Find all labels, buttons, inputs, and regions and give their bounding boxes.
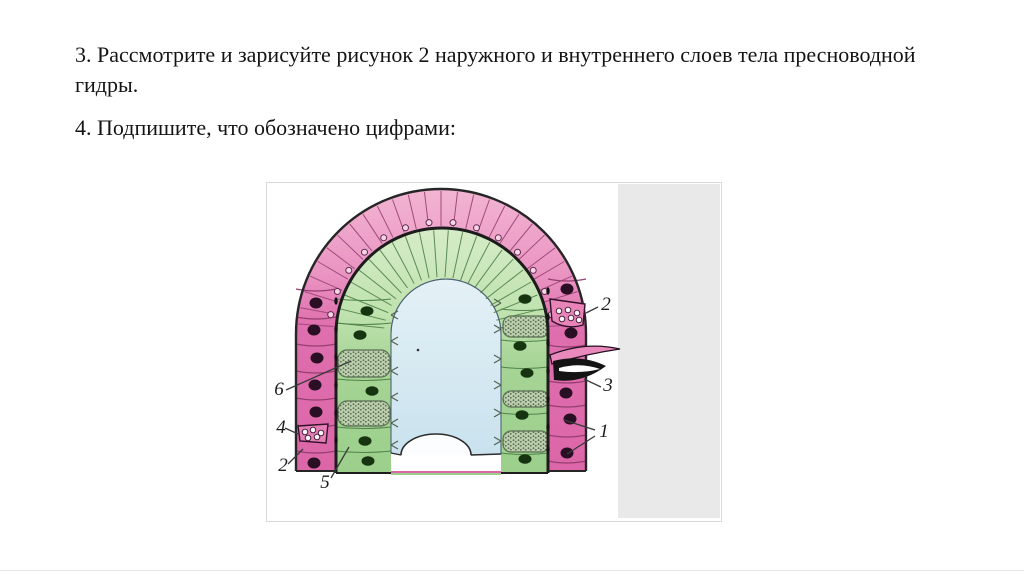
slide-bottom-edge	[0, 570, 1024, 571]
cell-nucleus	[521, 368, 534, 378]
slide: 3. Рассмотрите и зарисуйте рисунок 2 нар…	[0, 0, 1024, 574]
digestive-cell	[503, 316, 549, 337]
muscle-fibre	[546, 445, 549, 453]
task-3-text: 3. Рассмотрите и зарисуйте рисунок 2 нар…	[75, 40, 935, 100]
cell-nucleus	[309, 380, 322, 391]
muscle-fibre	[334, 409, 337, 417]
cell-nucleus	[311, 353, 324, 364]
diagram	[285, 184, 720, 518]
digestive-cell	[503, 391, 549, 407]
figure-label-5: 5	[316, 473, 334, 493]
figure-label-3: 3	[599, 376, 617, 396]
cell-nucleus	[516, 410, 529, 420]
task-4-text: 4. Подпишите, что обозначено цифрами:	[75, 113, 935, 143]
cell-nucleus	[308, 325, 321, 336]
cell-nucleus	[310, 298, 323, 309]
gray-panel	[618, 184, 720, 518]
figure-label-2-left: 2	[274, 456, 292, 476]
figure-label-2-right: 2	[597, 295, 615, 315]
hydra-figure: 2 3 1 6 4 2 5	[266, 182, 722, 522]
cell-nucleus	[519, 294, 532, 304]
muscle-fibre	[334, 353, 337, 361]
cell-nucleus	[519, 454, 532, 464]
cell-nucleus	[366, 386, 379, 396]
cell-nucleus	[514, 341, 527, 351]
figure-label-6: 6	[270, 380, 288, 400]
muscle-fibre	[334, 436, 337, 444]
cell-nucleus	[359, 436, 372, 446]
cell-nucleus	[362, 456, 375, 466]
hydra-diagram-svg	[267, 183, 721, 521]
cell-nucleus	[354, 330, 367, 340]
cell-nucleus	[310, 407, 323, 418]
cell-nucleus	[308, 458, 321, 469]
muscle-fibre	[546, 313, 549, 321]
muscle-fibre	[334, 325, 337, 333]
cell-nucleus	[561, 284, 574, 295]
cell-nucleus	[361, 306, 374, 316]
digestive-cell	[338, 401, 390, 426]
muscle-fibre	[546, 395, 549, 403]
cell-nucleus	[560, 388, 573, 399]
muscle-fibre	[546, 423, 549, 431]
muscle-fibre	[546, 339, 549, 347]
cell-nucleus	[561, 448, 574, 459]
muscle-fibre	[334, 297, 337, 305]
figure-label-4: 4	[272, 418, 290, 438]
muscle-fibre	[546, 367, 549, 375]
digestive-cell	[503, 431, 549, 452]
body-cavity	[391, 279, 501, 455]
figure-label-1: 1	[595, 422, 613, 442]
muscle-fibre	[334, 381, 337, 389]
muscle-fibre	[546, 287, 549, 295]
cell-nucleus	[565, 328, 578, 339]
